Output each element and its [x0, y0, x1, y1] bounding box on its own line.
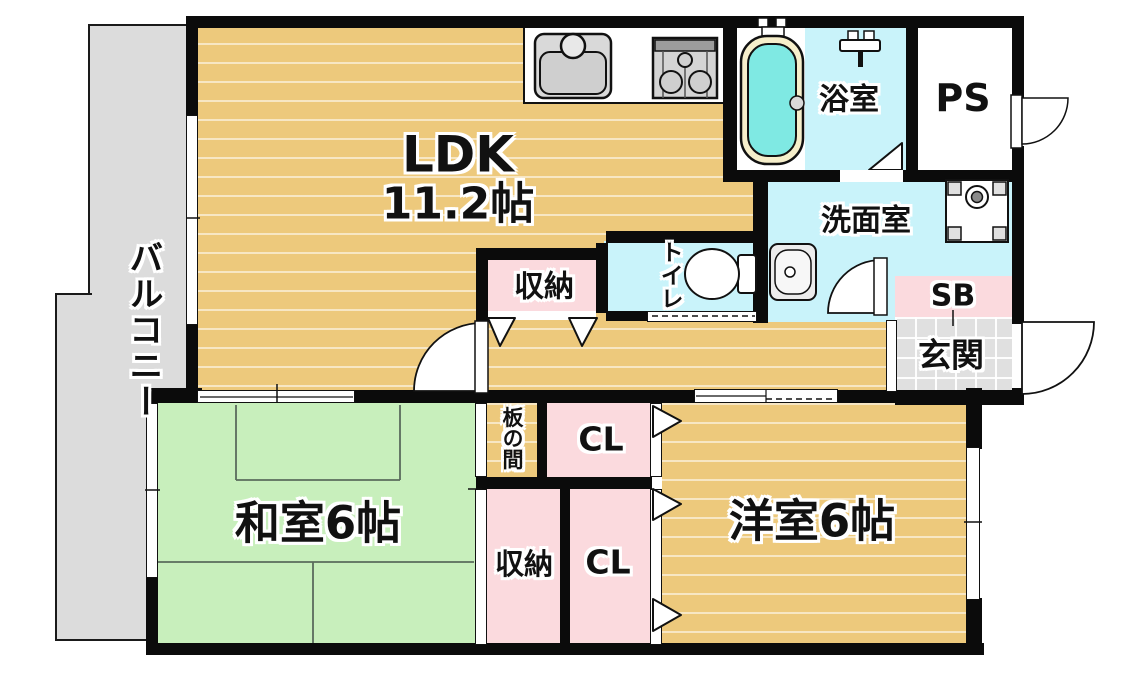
balcony-label: バルコニー — [124, 240, 160, 420]
ldk-balcony-window — [186, 115, 198, 325]
wall-youshitsu-right-b — [966, 598, 982, 655]
wall-toilet-top — [606, 231, 758, 243]
wall-storage-left — [476, 248, 488, 323]
hall-storage-label: 収納 — [514, 271, 574, 303]
wall-ldk-left-b — [186, 322, 198, 392]
pipe-space-door-icon — [1011, 95, 1068, 148]
kitchen-counter — [523, 26, 725, 104]
wall-storage-toilet — [596, 243, 608, 313]
floor-plan: バルコニー LDK 11.2帖 浴室 PS 洗面室 トイレ 収納 SB 玄関 板… — [0, 0, 1144, 676]
japanese-room-storage-label: 収納 — [495, 549, 553, 579]
closet-upper-label: CL — [578, 423, 623, 458]
western-room-label: 洋室6帖 — [729, 497, 895, 544]
wall-entrance-bottom — [895, 390, 1024, 405]
hall-storage-opening — [488, 311, 596, 320]
fusuma-strip-b — [475, 489, 487, 645]
entrance-sill — [886, 320, 897, 392]
wall-top — [186, 16, 1024, 28]
wall-rooms-top-a — [352, 390, 694, 403]
ldk-size: 11.2帖 — [382, 181, 535, 227]
closet-door-strip-a — [650, 403, 662, 477]
wall-ldk-bath — [723, 16, 737, 182]
wall-toilet-bottom-stub — [606, 311, 651, 321]
shoe-box-label: SB — [931, 280, 975, 312]
wall-storage-top — [476, 248, 608, 260]
closet-door-strip-b — [650, 489, 662, 645]
closet-lower-label: CL — [585, 546, 630, 581]
western-room-sliding-door — [694, 389, 838, 403]
toilet-label: トイレ — [657, 241, 681, 310]
wall-bath-ps — [906, 26, 918, 172]
wall-closet-upper-left — [537, 403, 547, 483]
itanoma-label: 板の間 — [501, 407, 523, 470]
wall-ldk-left-a — [186, 16, 198, 118]
japanese-room-label: 和室6帖 — [235, 499, 401, 546]
ldk-label: LDK 11.2帖 — [382, 129, 535, 228]
wall-right-a — [1012, 16, 1024, 98]
fusuma-strip-a — [475, 403, 487, 477]
entrance-door-icon — [1022, 322, 1094, 394]
bathtub-zone-floor — [735, 28, 807, 172]
wall-bath-bottom-a — [723, 170, 840, 182]
japanese-room-sliding-door — [197, 390, 355, 403]
bathroom-label: 浴室 — [819, 84, 879, 116]
wall-lower-divider — [560, 487, 570, 645]
western-room-window — [966, 447, 980, 600]
wall-bath-bottom-b — [903, 170, 1024, 182]
entrance-label: 玄関 — [918, 339, 984, 374]
wall-washroom-left — [753, 178, 768, 323]
pipe-space-label: PS — [935, 79, 990, 119]
toilet-sliding-door — [647, 311, 757, 322]
japanese-room-balcony-window — [146, 403, 158, 578]
washroom-label: 洗面室 — [821, 205, 911, 237]
ldk-name: LDK — [382, 129, 535, 182]
